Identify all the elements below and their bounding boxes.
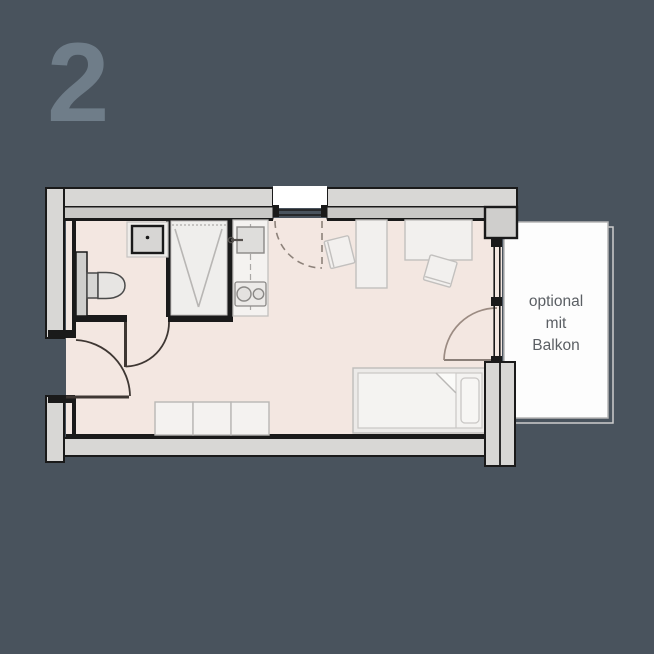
toilet xyxy=(87,273,125,299)
bathroom-wall-right xyxy=(227,218,233,322)
window-jamb xyxy=(321,205,327,217)
wardrobe-module xyxy=(155,402,193,435)
toilet-cistern xyxy=(87,273,98,298)
kitchenette xyxy=(228,220,268,316)
top-window-door xyxy=(273,186,327,217)
single-bed xyxy=(353,368,487,433)
plumbing-duct xyxy=(76,252,87,316)
wardrobe-module xyxy=(193,402,231,435)
exterior-wall-left-upper xyxy=(46,188,64,338)
exterior-wall-top-left xyxy=(46,188,273,207)
balcony: optional mit Balkon xyxy=(504,222,613,423)
exterior-wall-left-lower xyxy=(46,396,64,462)
washbasin-bowl xyxy=(132,226,163,253)
floor-plan: 2 optional mit Balkon xyxy=(0,0,654,654)
bathroom-wall-bottom-right xyxy=(168,315,233,322)
inner-wall-top-right xyxy=(327,207,497,219)
balcony-label-line3: Balkon xyxy=(532,337,579,354)
window-jamb xyxy=(273,205,279,217)
balcony-label-line1: optional xyxy=(529,293,583,310)
mullion xyxy=(491,238,502,247)
shower xyxy=(171,221,227,315)
wardrobe xyxy=(155,402,269,435)
interior-wall-bottom xyxy=(66,434,502,438)
pillow xyxy=(461,378,479,423)
burner-large xyxy=(237,287,251,301)
inner-wall-top-left xyxy=(64,207,273,219)
mullion xyxy=(491,297,502,306)
shower-tray xyxy=(171,221,227,315)
toilet-bowl xyxy=(98,273,125,299)
pier-top-right xyxy=(485,207,517,238)
exterior-wall-bottom xyxy=(64,438,515,456)
wardrobe-module xyxy=(231,402,269,435)
desk-vertical xyxy=(356,220,387,288)
burner-small xyxy=(253,289,263,299)
pier-bottom-right xyxy=(485,362,515,466)
washbasin-drain xyxy=(146,236,150,240)
entrance-jamb-top xyxy=(48,330,75,338)
balcony-label-line2: mit xyxy=(546,315,567,332)
desk-horizontal xyxy=(405,220,472,260)
plan-number: 2 xyxy=(47,20,109,145)
cooktop xyxy=(235,282,266,306)
window-opening xyxy=(273,186,327,208)
washbasin xyxy=(127,222,168,257)
exterior-wall-top-right xyxy=(327,188,517,207)
screenshot-canvas: 2 optional mit Balkon xyxy=(0,0,654,654)
